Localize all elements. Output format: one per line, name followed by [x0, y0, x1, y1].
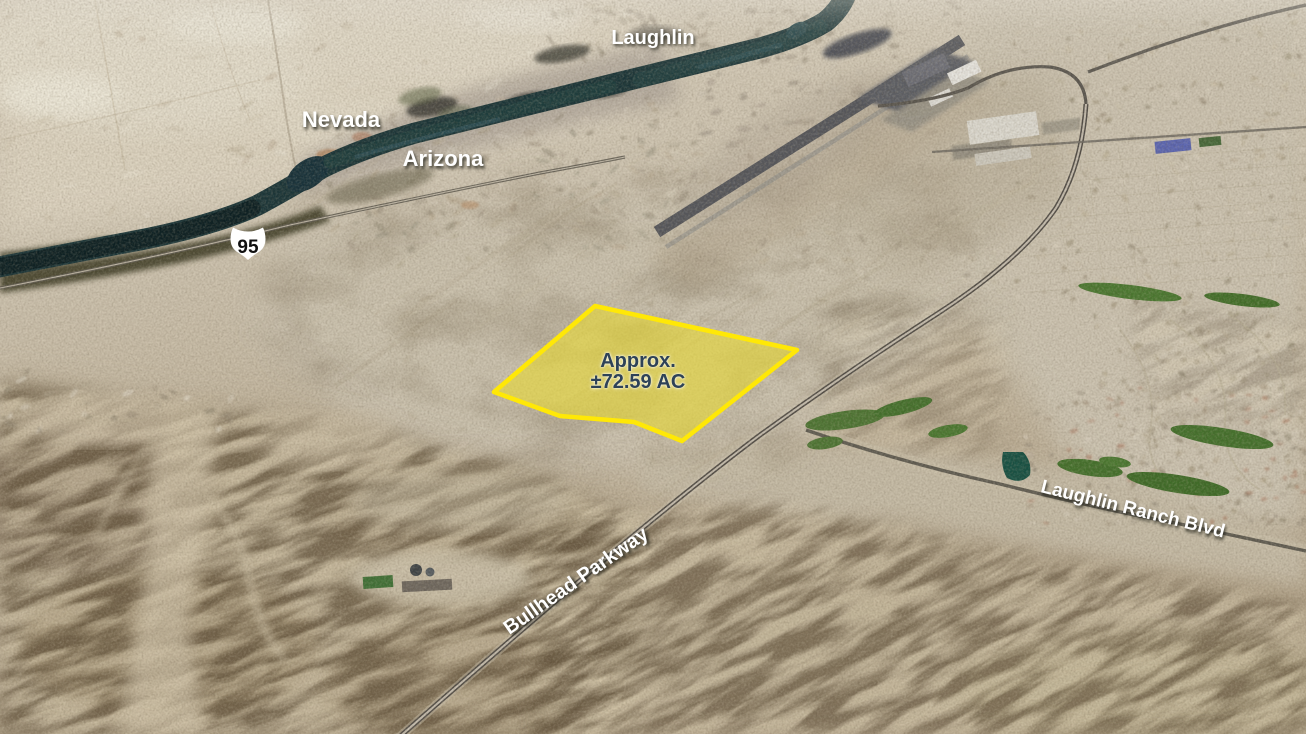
svg-text:Approx.: Approx.	[600, 350, 676, 372]
svg-text:95: 95	[237, 237, 259, 258]
svg-text:±72.59 AC: ±72.59 AC	[591, 371, 686, 393]
svg-text:Nevada: Nevada	[302, 107, 381, 132]
svg-text:Laughlin: Laughlin	[611, 27, 694, 49]
svg-text:Arizona: Arizona	[403, 146, 484, 171]
